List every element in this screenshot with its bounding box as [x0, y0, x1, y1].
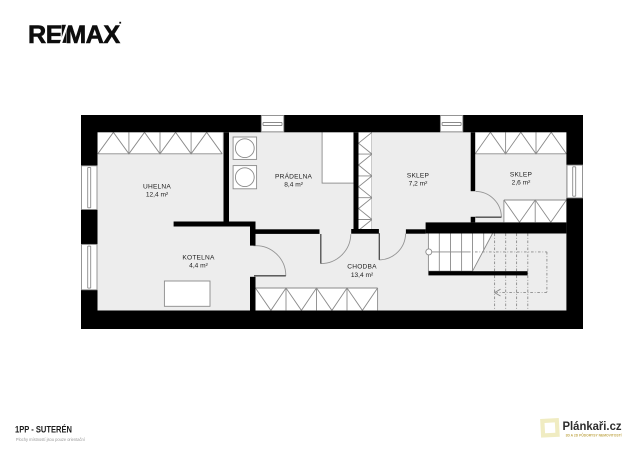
svg-text:UHELNA: UHELNA: [143, 184, 171, 191]
svg-text:CHODBA: CHODBA: [347, 264, 377, 271]
svg-text:Plochy místností jsou pouze or: Plochy místností jsou pouze orientační: [16, 437, 86, 443]
svg-text:4,4 m²: 4,4 m²: [189, 263, 208, 270]
svg-text:3D A 2D PŮDORYSY NEMOVITOSTÍ: 3D A 2D PŮDORYSY NEMOVITOSTÍ: [566, 432, 623, 437]
svg-text:SKLEP: SKLEP: [510, 171, 533, 178]
svg-text:MAX: MAX: [65, 21, 120, 49]
svg-text:2,6 m²: 2,6 m²: [512, 179, 531, 186]
svg-text:RE: RE: [28, 21, 62, 49]
svg-text:12,4 m²: 12,4 m²: [146, 191, 169, 198]
svg-text:7,2 m²: 7,2 m²: [409, 180, 428, 187]
svg-text:1PP - SUTERÉN: 1PP - SUTERÉN: [15, 425, 72, 435]
svg-text:KOTELNA: KOTELNA: [182, 255, 215, 262]
svg-text:PRÁDELNA: PRÁDELNA: [275, 171, 313, 180]
svg-text:SKLEP: SKLEP: [407, 172, 430, 179]
svg-text:Plánkaři.cz: Plánkaři.cz: [563, 419, 622, 433]
svg-text:13,4 m²: 13,4 m²: [351, 272, 374, 279]
svg-text:8,4 m²: 8,4 m²: [284, 181, 303, 188]
